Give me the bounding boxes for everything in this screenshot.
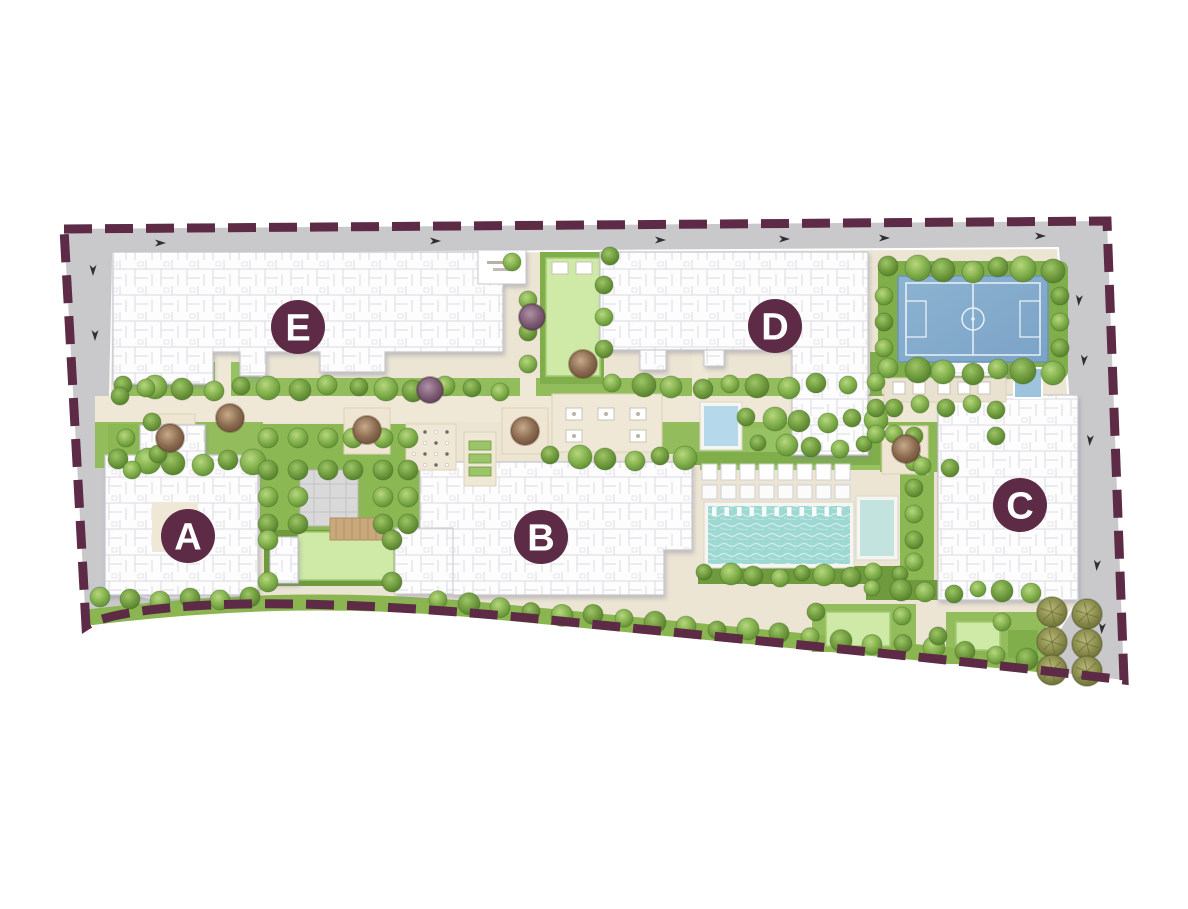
pool-lounger [800,507,805,516]
play-dot [445,452,449,456]
tree-icon [693,379,713,399]
tree-icon [745,374,769,398]
tree-icon [595,340,613,358]
tree-icon [318,428,338,448]
tree-icon [801,437,821,457]
cabana [740,485,755,499]
tree-icon [696,564,712,580]
cabana [702,485,717,499]
badge-c[interactable]: C [993,478,1047,532]
play-dot [423,463,427,467]
badge-b[interactable]: B [514,510,568,564]
play-dot [434,463,438,467]
play-dot [423,452,427,456]
cabana [835,485,850,499]
play-dot [423,441,427,445]
badge-a[interactable]: A [161,509,215,563]
tree-icon [374,377,398,401]
tree-icon [120,589,140,609]
cabana [721,485,736,499]
tree-icon [788,410,810,432]
feature-tree-icon [511,417,539,445]
tree-icon [288,487,308,507]
tree-icon [867,425,885,443]
tree-icon [941,459,959,477]
tree-icon [503,253,521,271]
tree-icon [875,339,893,357]
tree-icon [993,613,1011,631]
pool-lounger [775,507,780,516]
pool-lounger [737,507,742,516]
tree-icon [763,407,787,431]
seating-table [572,412,576,416]
play-dot [423,430,427,434]
tree-icon [929,627,947,645]
tree-icon [117,429,135,447]
terrace-seat [913,382,925,394]
site-plan-page: E D A B C [0,0,1188,909]
cabana [759,464,774,480]
tree-icon [288,428,308,448]
terrace-seat [978,382,990,394]
tree-icon [373,487,393,507]
tree-icon [90,587,110,607]
tree-icon [1010,358,1036,384]
tree-icon [256,376,280,400]
seating-table [604,412,608,416]
tree-icon [137,379,155,397]
tree-icon [398,514,418,534]
tree-icon [192,454,214,476]
ornamental-tree-icon [417,377,443,403]
tree-icon [987,427,1005,445]
tree-icon [343,460,363,480]
seating-table [572,434,576,438]
tree-icon [843,409,861,427]
badge-d-label: D [761,307,788,349]
tree-icon [541,446,559,464]
tree-icon [232,377,250,395]
tree-icon [970,581,986,597]
play-dot [445,441,449,445]
tree-icon [841,567,861,587]
building-b-wing [395,528,453,594]
tree-icon [905,553,923,571]
cabana [721,464,736,480]
tree-icon [878,256,898,276]
play-dot [434,441,438,445]
tree-icon [905,505,923,523]
pool-lounger [787,507,792,516]
tree-icon [743,566,763,586]
tree-icon [1051,339,1069,357]
pool-lounger [762,507,767,516]
tree-icon [988,257,1008,277]
garden-seat [552,262,568,274]
plunge-pool [860,500,894,556]
badge-c-label: C [1006,486,1033,528]
tree-icon [398,487,418,507]
tree-icon [1041,259,1065,283]
tree-icon [568,445,592,469]
tree-icon [382,572,402,592]
seating-table [636,412,640,416]
badge-b-label: B [527,518,554,560]
cabana [778,464,793,480]
play-dot [445,463,449,467]
bbq-plaza [552,394,662,452]
tree-icon [937,399,955,417]
tree-icon [991,580,1013,602]
play-dot [412,452,416,456]
cabana [816,464,831,480]
tree-icon [289,379,311,401]
tree-icon [945,585,963,603]
tree-icon [350,378,368,396]
tree-icon [864,580,880,596]
tree-icon [601,247,619,265]
tree-icon [771,569,789,587]
tree-icon [962,363,984,385]
tree-icon [258,572,278,592]
tree-icon [1041,361,1065,385]
cabana [835,464,850,480]
tree-icon [143,413,161,431]
tree-icon [398,460,418,480]
tree-icon [890,579,912,601]
tree-icon [813,564,835,586]
pool-lounger [812,507,817,516]
tree-icon [831,440,849,458]
tree-icon [603,374,621,392]
tree-icon [806,373,826,393]
tree-icon [905,255,931,281]
tree-icon [123,461,141,479]
cabana [702,464,717,480]
tree-icon [673,446,697,470]
tree-icon [373,460,393,480]
tree-icon [171,378,193,400]
tree-icon [491,383,509,401]
tree-icon [778,377,800,399]
tree-icon [625,451,645,471]
tree-icon [737,408,755,426]
tree-icon [750,435,766,451]
pool-lounger [725,507,730,516]
cabana [759,485,774,499]
building-d-stub [640,350,666,370]
tree-icon [894,634,912,652]
tree-icon [204,381,224,401]
tree-icon [651,447,669,465]
feature-tree-icon [216,404,244,432]
tree-icon [818,413,838,433]
tree-icon [931,360,955,384]
tree-icon [288,514,308,534]
play-dot [434,430,438,434]
tree-icon [218,450,238,470]
tree-icon [875,287,893,305]
tree-icon [258,428,278,448]
tree-icon [987,646,1005,664]
garden-seat [576,262,592,274]
seating-table [636,434,640,438]
badge-d[interactable]: D [748,299,802,353]
pool-lounger [825,507,830,516]
tree-icon [905,479,923,497]
tree-icon [317,375,337,395]
cabana [797,485,812,499]
tree-icon [111,387,129,405]
play-dot [445,430,449,434]
tree-icon [288,460,308,480]
tree-icon [915,582,935,602]
terrace-seat [893,382,905,394]
tree-icon [398,428,418,448]
tree-icon [721,375,739,393]
tree-icon [660,376,682,398]
tree-icon [463,379,481,397]
cabana [797,464,812,480]
tree-icon [867,373,885,391]
tree-icon [864,563,882,581]
badge-e[interactable]: E [271,300,325,354]
badge-a-label: A [174,517,201,559]
feature-tree-icon [353,416,381,444]
site-plan-map: E D A B C [0,0,1188,909]
kids-pool [704,406,738,446]
tree-icon [905,531,923,549]
sports-court [898,276,1048,362]
tree-icon [875,313,893,331]
building-d-stub [704,350,724,366]
tree-icon [595,276,613,294]
tree-icon [962,261,984,283]
tree-icon [988,359,1008,379]
tree-icon [807,603,825,621]
feature-tree-icon [156,424,184,452]
cabana [816,485,831,499]
tree-icon [720,563,742,585]
tree-icon [867,399,885,417]
tree-icon [839,376,857,394]
ornamental-tree-icon [519,304,545,330]
tree-icon [382,530,402,550]
pool-lounger [750,507,755,516]
tree-icon [258,530,278,550]
pool-lounger [837,507,842,516]
tree-icon [595,308,613,326]
tree-icon [519,355,537,373]
tree-icon [963,395,981,413]
feature-tree-icon [892,435,920,463]
tree-icon [905,357,931,383]
tree-icon [776,434,798,456]
play-dot [434,452,438,456]
tree-icon [258,487,278,507]
tree-icon [794,565,810,581]
tree-icon [1021,583,1041,603]
tree-icon [1010,256,1036,282]
tree-icon [258,460,278,480]
tree-icon [1051,287,1069,305]
tree-icon [931,258,955,282]
tree-icon [1051,313,1069,331]
cabana [740,464,755,480]
tree-icon [632,373,656,397]
pool-lounger [712,507,717,516]
cabana [778,485,793,499]
tree-icon [885,399,903,417]
feature-tree-icon [569,350,597,378]
tree-icon [987,401,1005,419]
tree-icon [318,460,338,480]
badge-e-label: E [285,308,310,350]
tree-icon [594,448,616,470]
tree-icon [893,607,911,625]
tree-icon [911,395,929,413]
